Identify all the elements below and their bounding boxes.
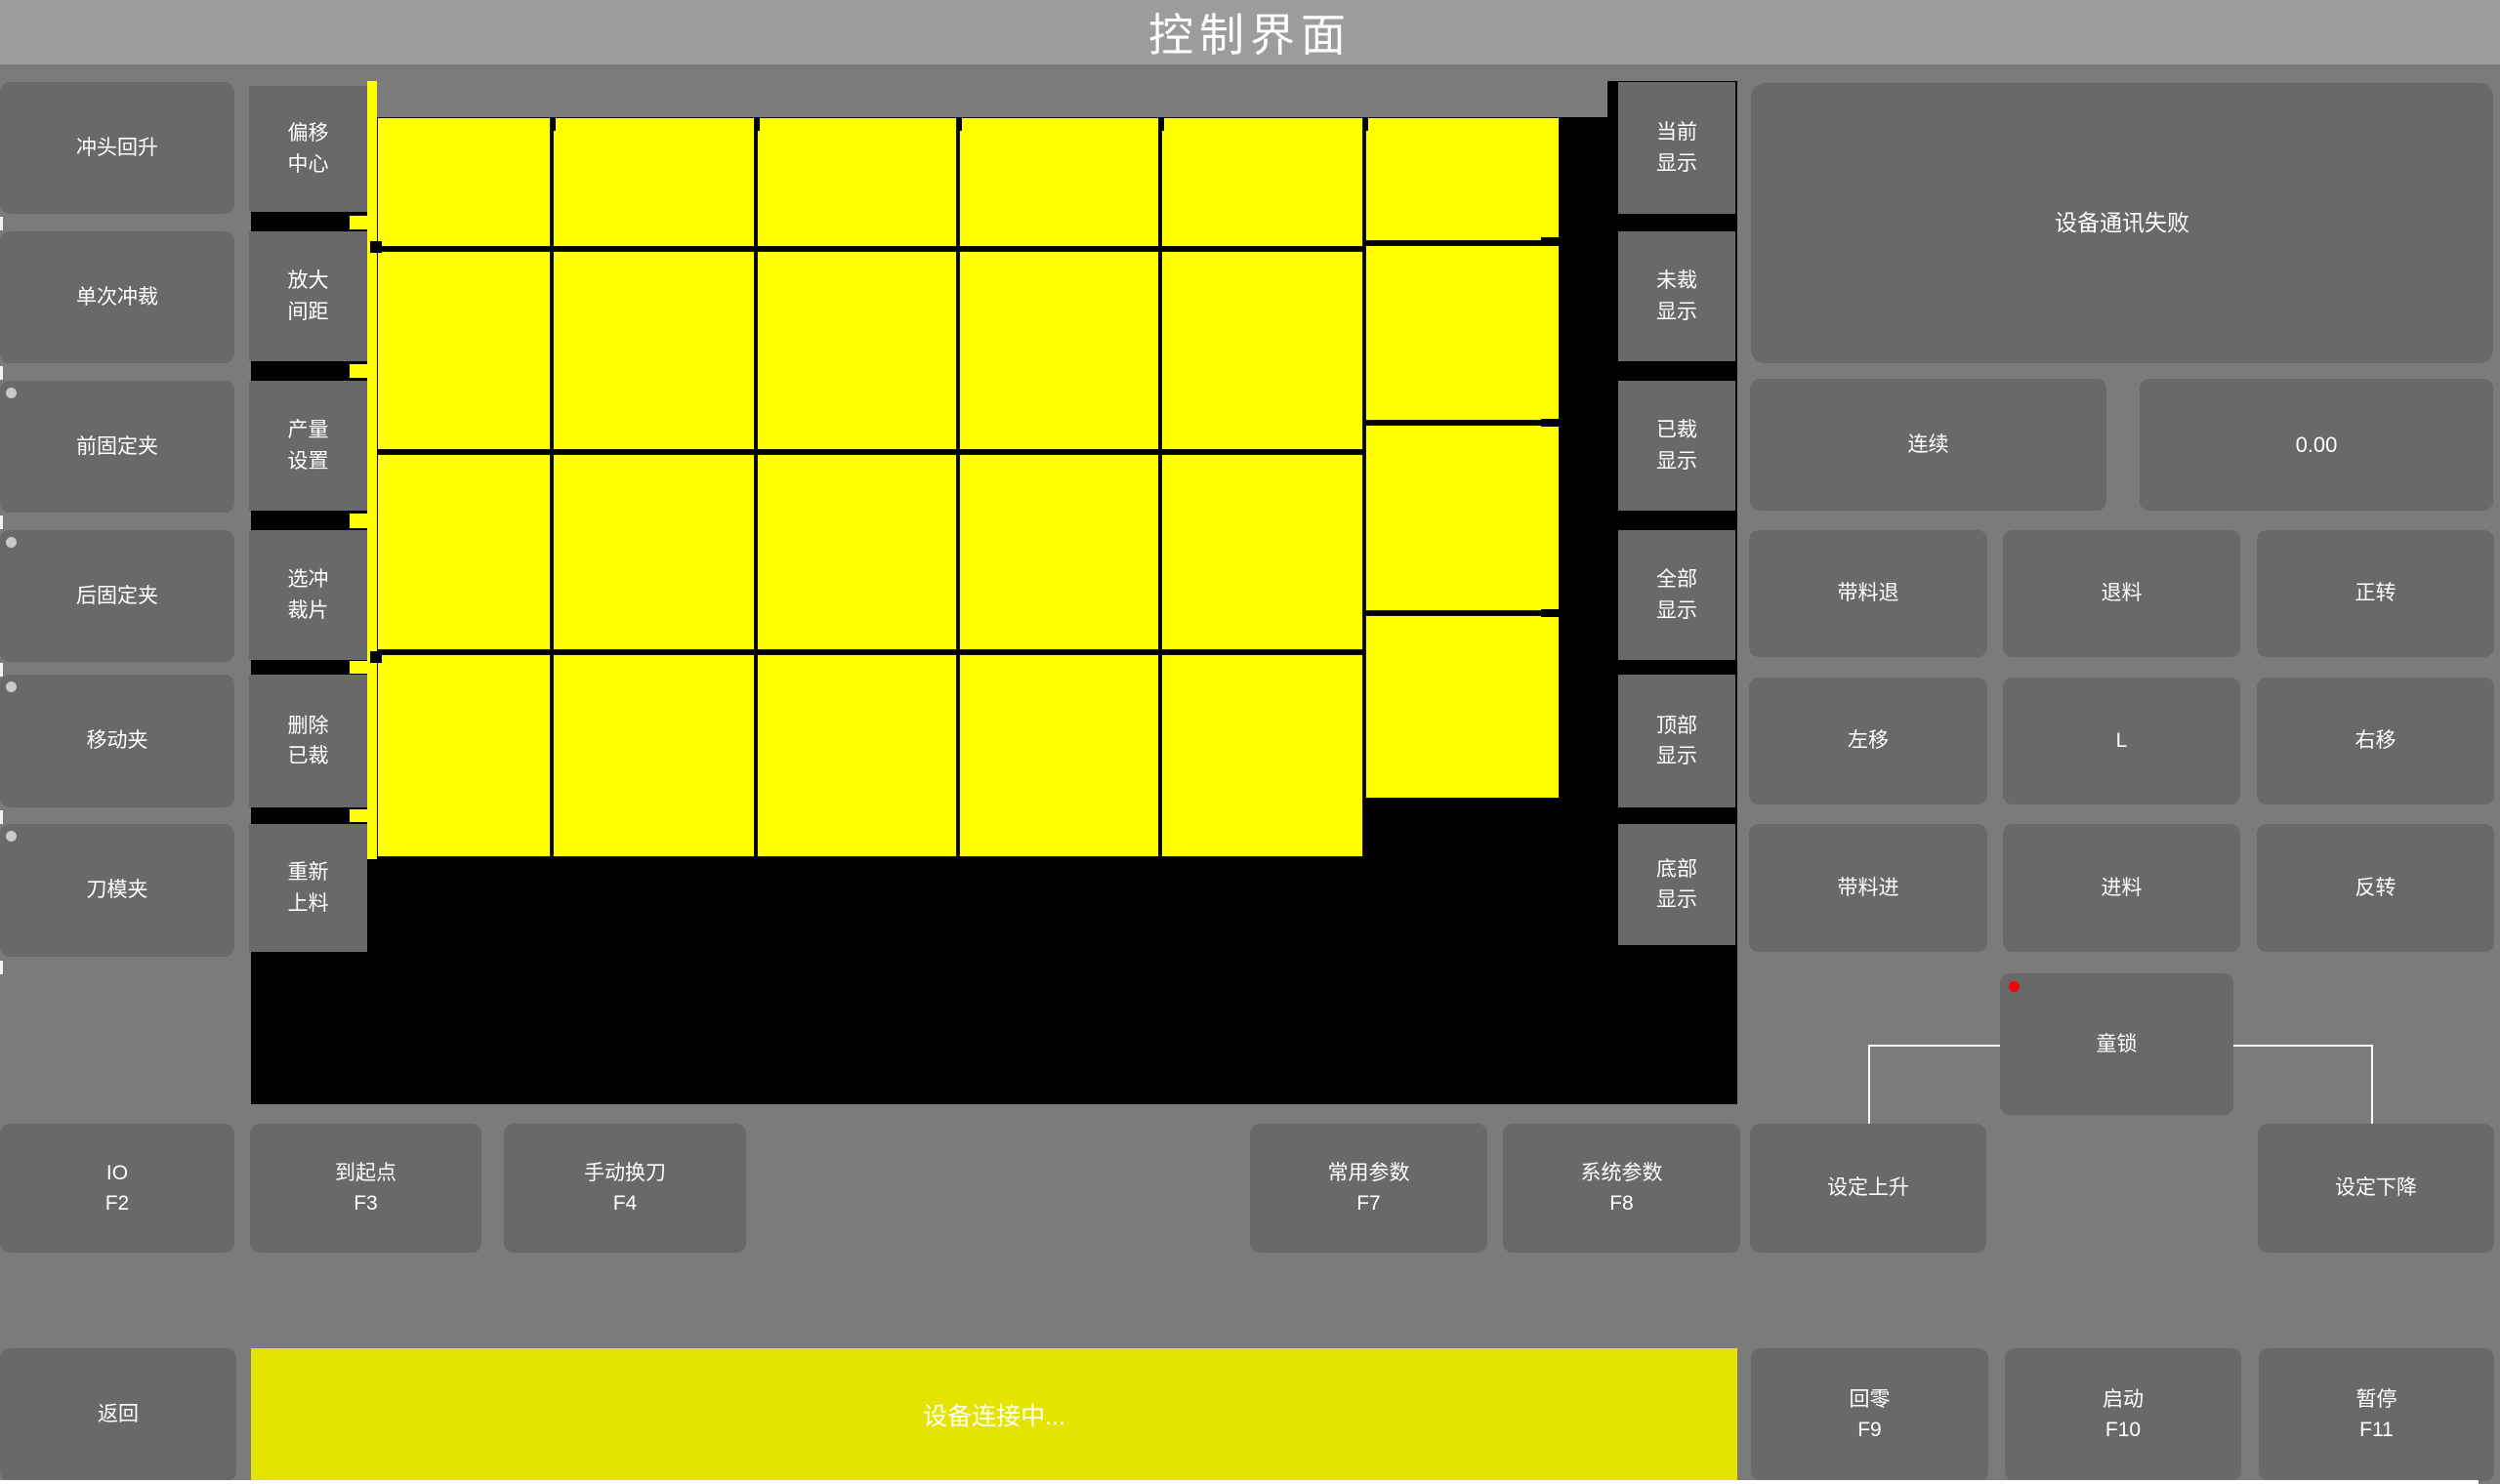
sheet-notch <box>370 651 382 663</box>
sheet-piece[interactable] <box>553 251 755 450</box>
button-label: 放大 间距 <box>288 266 329 327</box>
rotate-reverse-button[interactable]: 反转 <box>2257 824 2494 952</box>
l-button[interactable]: L <box>2003 678 2240 804</box>
manual-tool-change-f4-button[interactable]: 手动换刀 F4 <box>504 1124 746 1253</box>
sheet-piece[interactable] <box>757 251 957 450</box>
show-cut-button[interactable]: 已裁 显示 <box>1618 381 1735 511</box>
button-label: IO <box>106 1158 128 1189</box>
set-rise-button[interactable]: 设定上升 <box>1750 1124 1986 1253</box>
button-label: 顶部 显示 <box>1656 711 1697 772</box>
mode-continuous-button[interactable]: 连续 <box>1750 379 2106 511</box>
rotate-forward-button[interactable]: 正转 <box>2257 530 2494 657</box>
edge-tick <box>0 961 3 974</box>
die-clamp-button[interactable]: 刀模夹 <box>0 824 234 957</box>
button-label: 单次冲裁 <box>76 282 158 313</box>
move-left-button[interactable]: 左移 <box>1749 678 1987 804</box>
punch-raise-button[interactable]: 冲头回升 <box>0 82 234 214</box>
feed-in-with-material-button[interactable]: 带料进 <box>1749 824 1987 952</box>
button-label: 全部 显示 <box>1656 564 1697 626</box>
fkey-label: F7 <box>1356 1188 1381 1219</box>
sheet-tick <box>755 117 760 131</box>
show-top-button[interactable]: 顶部 显示 <box>1618 675 1735 807</box>
rear-clamp-button[interactable]: 后固定夹 <box>0 530 234 662</box>
sheet-piece[interactable] <box>377 654 551 857</box>
sheet-piece[interactable] <box>553 654 755 857</box>
edge-tick <box>0 366 3 380</box>
button-label: L <box>2116 725 2128 757</box>
sheet-piece[interactable] <box>1365 615 1560 799</box>
select-piece-button[interactable]: 选冲 裁片 <box>249 530 367 660</box>
status-indicator-dot <box>6 831 17 842</box>
button-label: 系统参数 <box>1581 1158 1663 1189</box>
sheet-notch <box>1541 237 1560 245</box>
sheet-piece[interactable] <box>1365 245 1560 421</box>
button-label: 退料 <box>2102 578 2143 609</box>
button-label: 左移 <box>1848 725 1889 757</box>
bottom-edge-line <box>0 1480 2479 1484</box>
button-label: 选冲 裁片 <box>288 564 329 626</box>
button-label: 未裁 显示 <box>1656 266 1697 327</box>
fkey-label: F3 <box>354 1188 378 1219</box>
front-clamp-button[interactable]: 前固定夹 <box>0 381 234 513</box>
sheet-piece[interactable] <box>959 117 1159 247</box>
fkey-label: F4 <box>613 1188 638 1219</box>
sheet-piece[interactable] <box>1161 117 1363 247</box>
edge-tick <box>0 217 3 230</box>
sheet-piece[interactable] <box>1365 425 1560 611</box>
show-current-button[interactable]: 当前 显示 <box>1618 82 1735 214</box>
fkey-label: F10 <box>2105 1415 2141 1446</box>
edge-tick <box>0 810 3 824</box>
status-indicator-dot <box>6 388 17 398</box>
feed-material-button[interactable]: 进料 <box>2003 824 2240 952</box>
delete-cut-button[interactable]: 删除 已裁 <box>249 675 367 807</box>
show-all-button[interactable]: 全部 显示 <box>1618 530 1735 660</box>
sheet-piece[interactable] <box>959 654 1159 857</box>
button-label: 冲头回升 <box>76 133 158 164</box>
button-label: 设定下降 <box>2335 1173 2417 1204</box>
moving-clamp-button[interactable]: 移动夹 <box>0 675 234 807</box>
sheet-notch <box>1541 419 1560 427</box>
button-label: 进料 <box>2102 873 2143 904</box>
sheet-piece[interactable] <box>959 251 1159 450</box>
button-label: 手动换刀 <box>584 1158 666 1189</box>
sheet-tick <box>551 117 556 131</box>
connector-line <box>2371 1045 2373 1124</box>
child-lock-button[interactable]: 童锁 <box>2000 973 2233 1115</box>
fkey-label: F11 <box>2359 1415 2394 1446</box>
pause-f11-button[interactable]: 暂停 F11 <box>2259 1348 2494 1481</box>
start-f10-button[interactable]: 启动 F10 <box>2005 1348 2241 1481</box>
button-label: 带料进 <box>1838 873 1899 904</box>
button-label: 产量 设置 <box>288 415 329 476</box>
sheet-piece[interactable] <box>757 654 957 857</box>
move-right-button[interactable]: 右移 <box>2257 678 2494 804</box>
sheet-piece[interactable] <box>1365 117 1560 241</box>
fkey-label: F2 <box>105 1188 130 1219</box>
io-f2-button[interactable]: IO F2 <box>0 1124 234 1253</box>
sheet-tick <box>1363 117 1368 131</box>
button-label: 童锁 <box>2097 1029 2138 1060</box>
button-label: 到起点 <box>335 1158 396 1189</box>
value-display-field[interactable]: 0.00 <box>2140 379 2493 511</box>
fkey-label: F8 <box>1609 1188 1634 1219</box>
sheet-piece[interactable] <box>553 117 755 247</box>
output-settings-button[interactable]: 产量 设置 <box>249 381 367 511</box>
status-indicator-dot <box>6 537 17 548</box>
button-label: 右移 <box>2355 725 2396 757</box>
button-label: 删除 已裁 <box>288 711 329 772</box>
status-indicator-dot <box>6 681 17 692</box>
button-label: 已裁 显示 <box>1656 415 1697 476</box>
sheet-tick <box>1159 117 1164 131</box>
button-label: 后固定夹 <box>76 581 158 612</box>
button-label: 底部 显示 <box>1656 854 1697 916</box>
offset-center-button[interactable]: 偏移 中心 <box>249 86 367 212</box>
connection-status-bar: 设备连接中... <box>251 1348 1737 1481</box>
feed-back-with-material-button[interactable]: 带料退 <box>1749 530 1987 657</box>
reload-material-button[interactable]: 重新 上料 <box>249 824 367 952</box>
connection-status-text: 设备连接中... <box>923 1397 1065 1432</box>
sheet-piece[interactable] <box>377 251 551 450</box>
button-label: 返回 <box>98 1399 139 1430</box>
sheet-tick <box>957 117 962 131</box>
sheet-piece[interactable] <box>553 454 755 650</box>
show-bottom-button[interactable]: 底部 显示 <box>1618 824 1735 945</box>
go-to-origin-f3-button[interactable]: 到起点 F3 <box>250 1124 481 1253</box>
button-label: 连续 <box>1908 430 1949 461</box>
show-uncut-button[interactable]: 未裁 显示 <box>1618 231 1735 361</box>
sheet-piece[interactable] <box>1161 454 1363 650</box>
set-fall-button[interactable]: 设定下降 <box>2258 1124 2494 1253</box>
button-label: 重新 上料 <box>288 857 329 919</box>
back-button[interactable]: 返回 <box>0 1348 236 1481</box>
connector-line <box>1868 1045 1870 1124</box>
sheet-piece[interactable] <box>959 454 1159 650</box>
retract-material-button[interactable]: 退料 <box>2003 530 2240 657</box>
value-display: 0.00 <box>2296 429 2338 461</box>
button-label: 当前 显示 <box>1656 117 1697 179</box>
device-status-message: 设备通讯失败 <box>2055 206 2189 240</box>
button-label: 带料退 <box>1838 578 1899 609</box>
button-label: 启动 <box>2103 1384 2144 1416</box>
system-params-f8-button[interactable]: 系统参数 F8 <box>1503 1124 1740 1253</box>
button-label: 暂停 <box>2356 1384 2397 1416</box>
sheet-notch <box>370 241 382 253</box>
sheet-notch <box>1541 609 1560 617</box>
sheet-piece[interactable] <box>757 117 957 247</box>
sheet-piece[interactable] <box>377 454 551 650</box>
button-label: 回零 <box>1850 1384 1891 1416</box>
edge-tick <box>0 515 3 529</box>
sheet-piece[interactable] <box>1161 654 1363 857</box>
button-label: 正转 <box>2355 578 2396 609</box>
button-label: 设定上升 <box>1827 1173 1909 1204</box>
button-label: 刀模夹 <box>87 875 148 906</box>
sheet-piece[interactable] <box>377 117 551 247</box>
single-punch-button[interactable]: 单次冲裁 <box>0 231 234 363</box>
button-label: 前固定夹 <box>76 432 158 463</box>
button-label: 反转 <box>2355 873 2396 904</box>
zoom-spacing-button[interactable]: 放大 间距 <box>249 231 367 361</box>
alert-dot <box>2009 981 2020 992</box>
sheet-piece[interactable] <box>757 454 957 650</box>
sheet-piece[interactable] <box>1161 251 1363 450</box>
button-label: 偏移 中心 <box>288 118 329 180</box>
button-label: 常用参数 <box>1328 1158 1410 1189</box>
fkey-label: F9 <box>1857 1415 1882 1446</box>
device-status-panel: 设备通讯失败 <box>1751 83 2493 363</box>
button-label: 移动夹 <box>87 725 148 757</box>
edge-tick <box>0 663 3 677</box>
home-f9-button[interactable]: 回零 F9 <box>1751 1348 1988 1481</box>
common-params-f7-button[interactable]: 常用参数 F7 <box>1250 1124 1487 1253</box>
